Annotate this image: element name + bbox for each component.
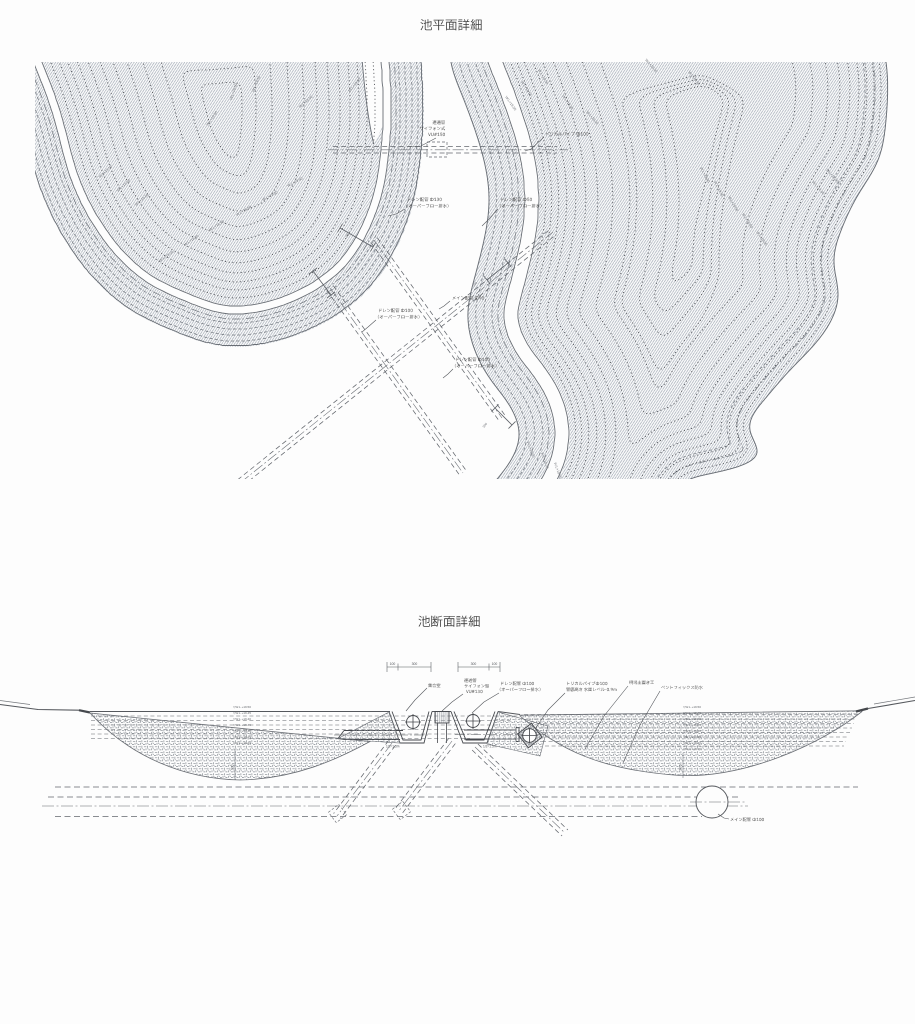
svg-text:▽W.L +19.50: ▽W.L +19.50 xyxy=(683,705,701,709)
svg-text:▽W.L +19.35: ▽W.L +19.35 xyxy=(233,723,251,727)
svg-text:900: 900 xyxy=(231,764,235,770)
svg-text:▽W.L +19.30: ▽W.L +19.30 xyxy=(233,729,251,733)
svg-text:100: 100 xyxy=(492,662,498,666)
svg-text:▽W.L +19.40: ▽W.L +19.40 xyxy=(683,717,701,721)
svg-text:▽W.L +19.25: ▽W.L +19.25 xyxy=(683,735,701,739)
svg-text:▽W.L +19.20: ▽W.L +19.20 xyxy=(683,741,701,745)
svg-text:▽W.L +19.45: ▽W.L +19.45 xyxy=(683,711,701,715)
svg-text:▽W.L +19.25: ▽W.L +19.25 xyxy=(233,735,251,739)
svg-text:▽W.L +19.50: ▽W.L +19.50 xyxy=(233,705,251,709)
svg-text:▽W.L +19.30: ▽W.L +19.30 xyxy=(683,729,701,733)
svg-text:300: 300 xyxy=(471,662,477,666)
svg-text:▽W.L +19.20: ▽W.L +19.20 xyxy=(233,741,251,745)
svg-text:300: 300 xyxy=(412,662,418,666)
svg-text:▽W.L +19.40: ▽W.L +19.40 xyxy=(233,717,251,721)
svg-text:900: 900 xyxy=(679,764,683,770)
svg-text:▽W.L +19.15: ▽W.L +19.15 xyxy=(683,747,701,751)
svg-text:▽W.L +19.35: ▽W.L +19.35 xyxy=(683,723,701,727)
svg-text:100: 100 xyxy=(390,662,396,666)
